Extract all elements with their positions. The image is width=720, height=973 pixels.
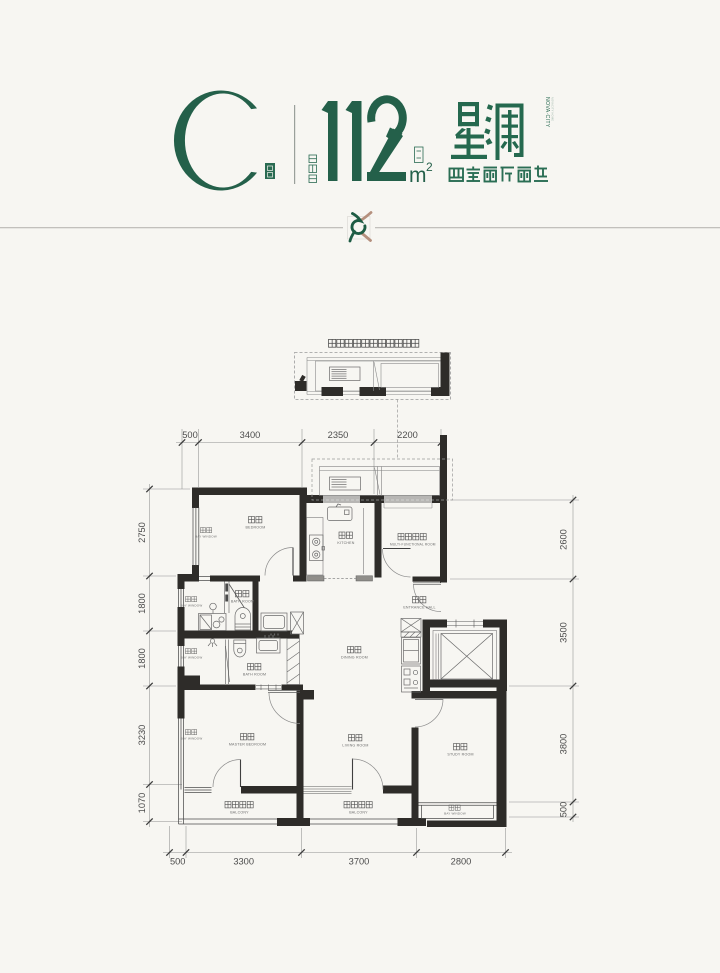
svg-text:BAY WINDOW: BAY WINDOW [195, 535, 217, 539]
svg-text:3800: 3800 [559, 734, 569, 755]
svg-text:BATH ROOM: BATH ROOM [243, 673, 266, 677]
svg-text:BEDROOM: BEDROOM [246, 526, 266, 530]
svg-text:2800: 2800 [451, 857, 472, 867]
svg-text:BAY WINDOW: BAY WINDOW [181, 737, 203, 741]
svg-text:BATH ROOM: BATH ROOM [231, 600, 254, 604]
svg-text:KITCHEN: KITCHEN [337, 541, 354, 545]
svg-text:MULTI-FUNCTIONAL ROOM: MULTI-FUNCTIONAL ROOM [390, 543, 436, 547]
svg-text:ENTRANCE HALL: ENTRANCE HALL [403, 606, 435, 610]
svg-text:2: 2 [426, 160, 433, 174]
svg-text:500: 500 [559, 802, 569, 818]
svg-text:1070: 1070 [137, 793, 147, 814]
svg-text:3300: 3300 [233, 857, 254, 867]
svg-text:1800: 1800 [137, 648, 147, 669]
svg-text:NOVA·CITY: NOVA·CITY [544, 97, 550, 128]
svg-text:2750: 2750 [137, 522, 147, 543]
svg-text:3500: 3500 [559, 622, 569, 643]
svg-text:2350: 2350 [328, 430, 349, 440]
svg-text:BALCONY: BALCONY [349, 811, 368, 815]
svg-text:2600: 2600 [559, 529, 569, 550]
svg-text:NOVACITY HOME: NOVACITY HOME [551, 97, 555, 121]
svg-text:BAY WINDOW: BAY WINDOW [181, 656, 203, 660]
svg-text:1800: 1800 [137, 593, 147, 614]
svg-text:3400: 3400 [240, 430, 261, 440]
svg-text:m: m [409, 164, 427, 187]
svg-text:BAY WINDOW: BAY WINDOW [181, 604, 203, 608]
svg-text:DINING ROOM: DINING ROOM [341, 656, 368, 660]
svg-text:3700: 3700 [349, 857, 370, 867]
svg-text:LIVING ROOM: LIVING ROOM [342, 744, 368, 748]
svg-text:2200: 2200 [397, 430, 418, 440]
svg-text:500: 500 [182, 430, 198, 440]
svg-text:MASTER BEDROOM: MASTER BEDROOM [229, 743, 266, 747]
svg-text:BAY WINDOW: BAY WINDOW [444, 812, 466, 816]
svg-text:STUDY ROOM: STUDY ROOM [447, 753, 473, 757]
svg-text:500: 500 [170, 857, 186, 867]
svg-text:3230: 3230 [137, 725, 147, 746]
svg-text:BALCONY: BALCONY [230, 811, 249, 815]
